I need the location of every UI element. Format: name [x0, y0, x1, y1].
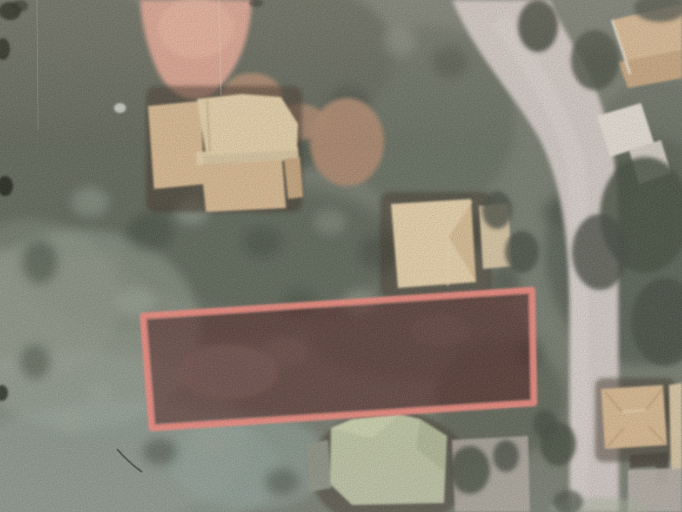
- aerial-photo-canvas: [0, 0, 682, 512]
- aerial-photo: Aerial satellite photograph of a wooded …: [0, 0, 682, 512]
- film-grain-light: [0, 0, 682, 512]
